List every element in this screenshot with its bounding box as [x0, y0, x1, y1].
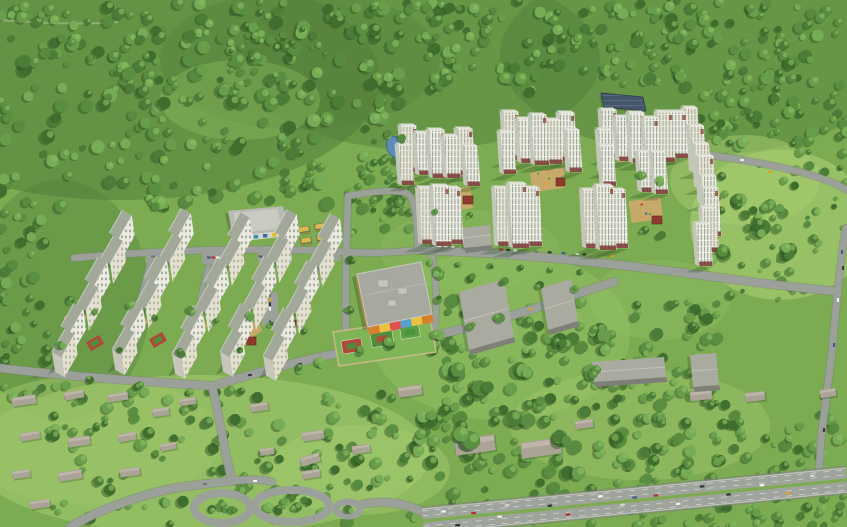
tower-segment — [593, 184, 617, 251]
highway-car — [676, 503, 681, 506]
highway-car — [441, 510, 446, 513]
highway-car — [620, 503, 625, 506]
highway-car — [654, 494, 659, 497]
playground-pavilion — [556, 178, 565, 186]
highway-car — [726, 493, 731, 496]
highway-car — [760, 484, 765, 487]
highway-car — [632, 496, 637, 499]
storefront-sign — [272, 233, 276, 237]
tower-segment — [563, 128, 583, 173]
tower-segment — [506, 182, 530, 249]
cottage — [298, 226, 310, 235]
highway-car — [598, 495, 603, 498]
storefront-sign — [254, 235, 258, 239]
playground-pavilion — [652, 216, 662, 224]
school-west-road — [346, 196, 348, 352]
village-house — [745, 391, 767, 404]
tower-segment — [461, 144, 481, 187]
warehouse-4 — [687, 353, 721, 392]
highway-car — [810, 474, 815, 477]
highway-car — [471, 512, 476, 515]
rooftop-unit — [388, 300, 396, 306]
school-building — [352, 262, 434, 335]
tower-segment — [597, 144, 617, 187]
tower-segment — [440, 134, 461, 179]
tower-segment — [395, 143, 415, 186]
highway-car — [565, 513, 570, 516]
tower-segment — [497, 130, 517, 175]
highway-car — [786, 492, 791, 495]
tower-facade — [510, 184, 530, 248]
highway-car — [700, 485, 705, 488]
tower-segment — [528, 113, 550, 166]
tower-facade — [433, 186, 452, 246]
highway-car — [548, 504, 553, 507]
storefront-sign — [263, 234, 267, 238]
tower-facade — [532, 115, 550, 165]
scene-svg — [0, 0, 847, 527]
rooftop-unit — [378, 280, 388, 287]
highway-car — [455, 524, 460, 527]
low-building-towers — [459, 225, 494, 253]
warehouse-3 — [589, 357, 668, 387]
playground-pavilion — [247, 337, 256, 345]
playground-pavilion — [463, 196, 473, 204]
junction-link — [232, 480, 272, 482]
cottage — [300, 237, 312, 246]
tower-facade — [597, 186, 617, 250]
tower-segment — [692, 222, 713, 267]
aerial-render-viewport — [0, 0, 847, 527]
tower-segment — [649, 150, 669, 195]
highway-car — [497, 515, 502, 518]
highway-car — [505, 504, 510, 507]
rooftop-unit — [398, 288, 407, 294]
